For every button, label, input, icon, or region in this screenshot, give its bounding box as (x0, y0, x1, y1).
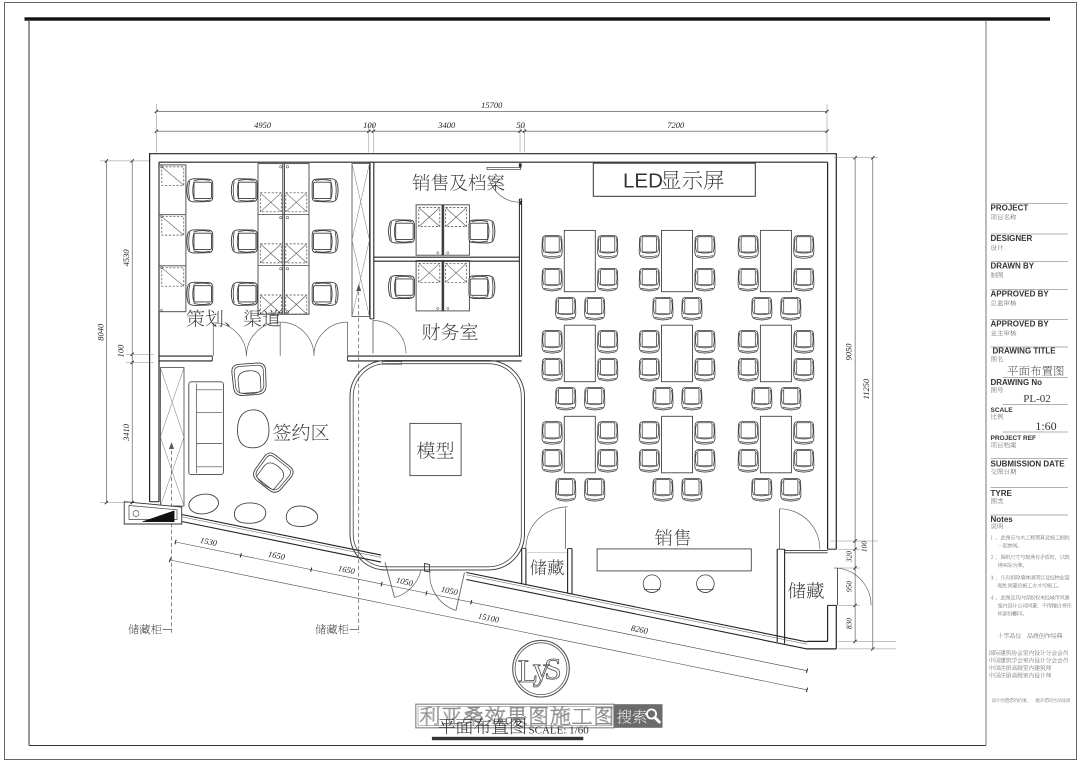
svg-text:Notes: Notes (991, 515, 1014, 524)
svg-text:100: 100 (363, 120, 377, 130)
svg-text:8040: 8040 (95, 323, 105, 341)
svg-text:SCALE: 1/60: SCALE: 1/60 (529, 725, 590, 737)
svg-text:S: S (544, 651, 561, 686)
svg-text:9050: 9050 (844, 343, 854, 361)
svg-text:3410: 3410 (121, 423, 131, 442)
svg-text:APPROVED BY: APPROVED BY (991, 320, 1050, 329)
svg-text:100: 100 (116, 344, 126, 358)
svg-text:DRAWING No: DRAWING No (991, 378, 1043, 387)
svg-text:SUBMISSION DATE: SUBMISSION DATE (991, 460, 1066, 469)
svg-text:PROJECT: PROJECT (991, 204, 1029, 213)
svg-text:PL-02: PL-02 (1023, 393, 1051, 405)
svg-text:DRAWING TITLE: DRAWING TITLE (993, 347, 1057, 356)
svg-text:15700: 15700 (481, 100, 503, 110)
svg-text:DESIGNER: DESIGNER (991, 234, 1033, 243)
svg-text:3400: 3400 (437, 120, 456, 130)
svg-text:DRAWN BY: DRAWN BY (991, 262, 1035, 271)
svg-text:APPROVED BY: APPROVED BY (991, 290, 1050, 299)
svg-text:TYRE: TYRE (991, 489, 1013, 498)
svg-text:4530: 4530 (121, 249, 131, 267)
svg-text:SCALE: SCALE (991, 407, 1014, 414)
svg-text:830: 830 (845, 618, 854, 630)
svg-text:1:60: 1:60 (1035, 419, 1056, 433)
svg-text:950: 950 (845, 581, 854, 593)
svg-text:PROJECT REF: PROJECT REF (991, 435, 1037, 442)
svg-text:7200: 7200 (667, 120, 685, 130)
svg-text:4950: 4950 (254, 120, 272, 130)
svg-text:50: 50 (516, 120, 525, 130)
svg-text:LED: LED (623, 170, 663, 193)
svg-text:320: 320 (845, 551, 854, 564)
svg-text:11250: 11250 (861, 378, 871, 399)
svg-text:100: 100 (860, 541, 869, 553)
